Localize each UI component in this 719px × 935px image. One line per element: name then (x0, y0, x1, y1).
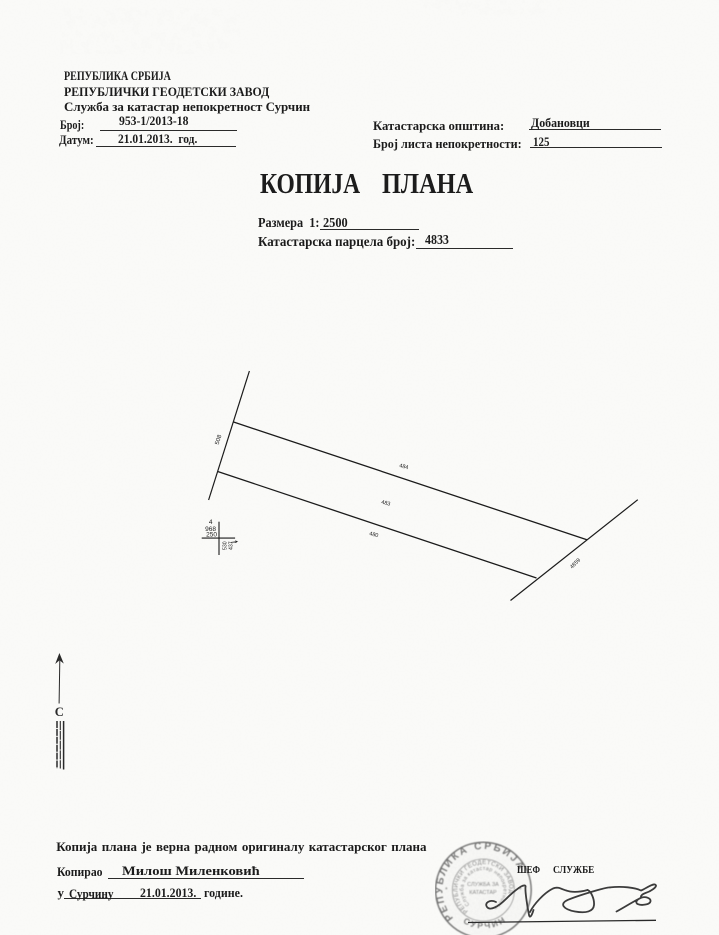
svg-text:480: 480 (369, 531, 379, 539)
svg-text:484: 484 (399, 463, 409, 471)
svg-text:437: 437 (229, 541, 235, 550)
svg-text:508: 508 (215, 434, 224, 446)
svg-text:4859: 4859 (569, 558, 582, 571)
svg-text:530: 530 (223, 541, 229, 550)
svg-text:250: 250 (206, 532, 217, 539)
svg-text:483: 483 (381, 500, 391, 508)
svg-text:4: 4 (209, 519, 213, 526)
svg-text:С: С (55, 705, 64, 719)
